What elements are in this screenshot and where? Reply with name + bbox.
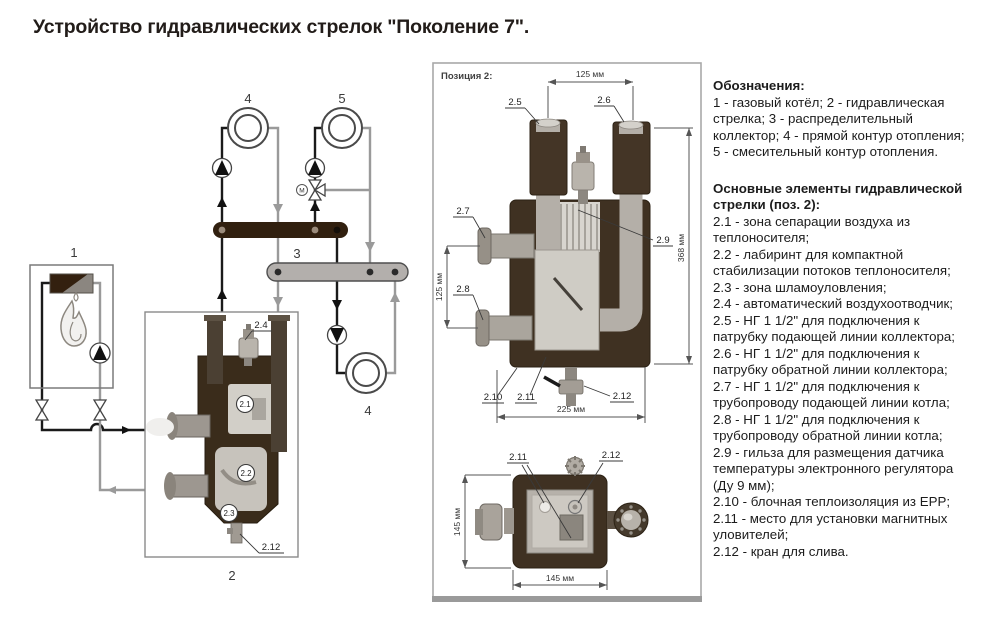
svg-text:2.12: 2.12 [613, 391, 632, 402]
legend-spacer [713, 161, 971, 181]
svg-text:2.5: 2.5 [508, 97, 521, 108]
heat-exchanger-icon [50, 274, 93, 293]
legend-column: Обозначения: 1 - газовый котёл; 2 - гидр… [713, 78, 971, 560]
three-way-mixing-valve-icon: M [297, 180, 326, 200]
flame-icon [61, 293, 86, 346]
circuit5-return-line [324, 128, 375, 263]
svg-text:2.3: 2.3 [223, 509, 235, 518]
legend-item: 2.12 - кран для слива. [713, 544, 971, 561]
svg-text:368 мм: 368 мм [676, 234, 686, 262]
svg-text:2.2: 2.2 [240, 469, 252, 478]
top-pipe-right [271, 318, 287, 452]
magnet-slot [540, 502, 551, 513]
hydraulic-arrow-render: 2.1 2.2 2.3 2.4 2.12 2 [145, 312, 298, 583]
circuit4b-supply-line [332, 236, 347, 373]
svg-text:2.4: 2.4 [254, 320, 267, 331]
shutoff-valve-icon [94, 400, 106, 420]
supply-manifold-bar [213, 222, 348, 238]
top-handwheel [565, 456, 585, 476]
svg-text:2.12: 2.12 [262, 542, 281, 553]
page: Устройство гидравлических стрелок "Покол… [0, 0, 1000, 630]
piping-schematic: 3 4 5 [0, 55, 430, 630]
magnet-slot-2 [560, 515, 583, 540]
callout-2-2: 2.2 [238, 465, 255, 482]
separator-vessel [535, 250, 599, 350]
return-downcomer-line [268, 128, 283, 312]
svg-text:145 мм: 145 мм [546, 573, 574, 583]
boiler-label: 1 [70, 245, 77, 260]
shutoff-valve-icon [36, 400, 48, 420]
svg-text:2.12: 2.12 [602, 450, 621, 461]
distribution-collector-bar [267, 263, 408, 281]
legend-heading-1: Обозначения: [713, 78, 971, 95]
box-bottom-bar [432, 596, 702, 602]
legend-item: 2.9 - гильза для размещения датчика темп… [713, 445, 971, 495]
pump-icon [90, 343, 110, 363]
position-heading: Позиция 2: [441, 71, 492, 82]
pump-icon [328, 326, 347, 345]
svg-text:2.11: 2.11 [517, 392, 535, 403]
legend-item: 2.3 - зона шламоуловления; [713, 280, 971, 297]
legend-item: 2.7 - НГ 1 1/2" для подключения к трубоп… [713, 379, 971, 412]
svg-text:145 мм: 145 мм [452, 508, 462, 536]
legend-item: 2.10 - блочная теплоизоляция из EPP; [713, 494, 971, 511]
legend-item: 2.2 - лабиринт для компактной стабилизац… [713, 247, 971, 280]
left-port-lower [164, 472, 208, 500]
legend-item: 2.6 - НГ 1 1/2" для подключения к патруб… [713, 346, 971, 379]
circuit5-label: 5 [338, 91, 345, 106]
supply-riser-line [217, 128, 228, 312]
page-title: Устройство гидравлических стрелок "Покол… [33, 16, 529, 39]
svg-text:2.8: 2.8 [456, 284, 469, 295]
collector-label: 3 [293, 246, 300, 261]
circuit4-label: 4 [244, 91, 251, 106]
gas-boiler: 1 [30, 245, 145, 494]
svg-text:125 мм: 125 мм [576, 69, 604, 79]
top-pipe-left [207, 318, 223, 384]
legend-item: 2.8 - НГ 1 1/2" для подключения к трубоп… [713, 412, 971, 445]
svg-text:2.6: 2.6 [597, 95, 610, 106]
svg-text:125 мм: 125 мм [434, 273, 444, 301]
pump-icon [306, 159, 325, 178]
legend-item: 2.1 - зона сепарации воздуха из теплонос… [713, 214, 971, 247]
svg-text:225 мм: 225 мм [557, 404, 585, 414]
spray-highlight [146, 418, 174, 436]
callout-2-1: 2.1 [237, 396, 254, 413]
circuit4b-return-line [385, 281, 400, 373]
svg-text:2.9: 2.9 [656, 235, 669, 246]
heating-circuit-5: 5 M [297, 91, 363, 200]
svg-text:2.11: 2.11 [509, 452, 527, 463]
callout-2-3: 2.3 [221, 505, 238, 522]
svg-text:2.7: 2.7 [456, 206, 469, 217]
legend-item: 2.5 - НГ 1 1/2" для подключения к патруб… [713, 313, 971, 346]
legend-item: 2.4 - автоматический воздухоотводчик; [713, 296, 971, 313]
arrow-label: 2 [228, 568, 235, 583]
legend-item: 2.11 - место для установки магнитных уло… [713, 511, 971, 544]
pump-icon [213, 159, 232, 178]
valve-motor-label: M [299, 188, 304, 195]
svg-text:2.1: 2.1 [239, 400, 251, 409]
position-2-drawing: Позиция 2: [432, 62, 702, 602]
circuit4b-label: 4 [364, 403, 371, 418]
legend-heading-2: Основные элементы гидравлической стрелки… [713, 181, 971, 214]
boiler-return-pipe [93, 283, 145, 490]
legend-paragraph-1: 1 - газовый котёл; 2 - гидравлическая ст… [713, 95, 971, 161]
